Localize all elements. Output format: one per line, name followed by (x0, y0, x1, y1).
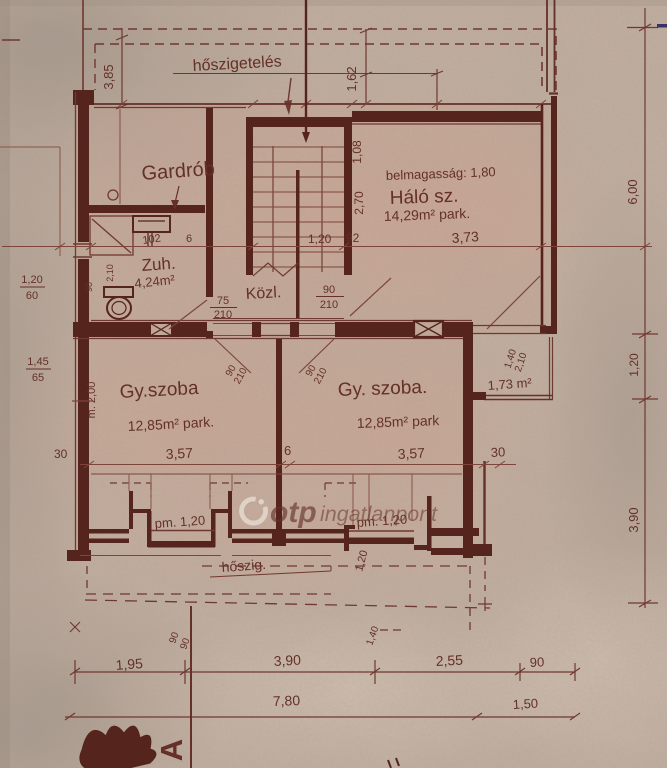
svg-text:1,62: 1,62 (344, 66, 359, 91)
svg-text:ingatlanpont: ingatlanpont (320, 502, 438, 526)
svg-text:6,00: 6,00 (625, 179, 640, 204)
svg-text:2,70: 2,70 (352, 191, 366, 215)
svg-text:14,29m² park.: 14,29m² park. (384, 205, 471, 224)
svg-text:1,20: 1,20 (627, 353, 641, 377)
svg-text:hőszig.: hőszig. (221, 556, 266, 575)
svg-text:90: 90 (529, 654, 544, 670)
svg-text:1,73 m²: 1,73 m² (487, 375, 533, 393)
svg-text:1,20: 1,20 (308, 232, 332, 246)
svg-text:210: 210 (320, 299, 338, 311)
svg-text:1,50: 1,50 (512, 696, 538, 712)
svg-text:90: 90 (323, 284, 335, 296)
svg-text:1,08: 1,08 (350, 140, 364, 164)
svg-text:Közl.: Közl. (245, 284, 281, 303)
svg-text:2,10: 2,10 (105, 264, 115, 282)
svg-text:otp: otp (270, 496, 317, 529)
svg-text:6: 6 (284, 443, 291, 458)
svg-text:2,55: 2,55 (435, 652, 463, 669)
svg-text:12,85m² park: 12,85m² park (357, 412, 441, 431)
svg-text:60: 60 (26, 290, 38, 302)
svg-text:92: 92 (346, 231, 360, 245)
svg-text:30: 30 (490, 444, 505, 460)
svg-text:102: 102 (142, 233, 162, 247)
svg-text:3,57: 3,57 (397, 445, 425, 462)
svg-text:1,20: 1,20 (21, 274, 42, 286)
svg-text:210: 210 (214, 309, 232, 321)
svg-text:3,90: 3,90 (273, 652, 301, 669)
svg-text:7,80: 7,80 (273, 692, 301, 709)
svg-text:65: 65 (32, 372, 44, 384)
svg-text:1,45: 1,45 (27, 356, 48, 368)
svg-text:3,73: 3,73 (451, 228, 480, 246)
svg-text:Gy.szoba: Gy.szoba (119, 378, 199, 403)
svg-text:Gy. szoba.: Gy. szoba. (337, 377, 427, 401)
svg-text:3,90: 3,90 (626, 507, 641, 532)
svg-text:90: 90 (84, 282, 94, 292)
svg-text:A: A (154, 739, 189, 761)
svg-text:3,85: 3,85 (101, 64, 116, 89)
svg-text:1,95: 1,95 (115, 655, 144, 673)
svg-text:6: 6 (186, 233, 192, 245)
svg-text:30: 30 (54, 447, 68, 461)
svg-text:m. 2,00: m. 2,00 (86, 382, 98, 419)
svg-text:75: 75 (217, 295, 229, 307)
svg-text:3,57: 3,57 (165, 445, 193, 462)
